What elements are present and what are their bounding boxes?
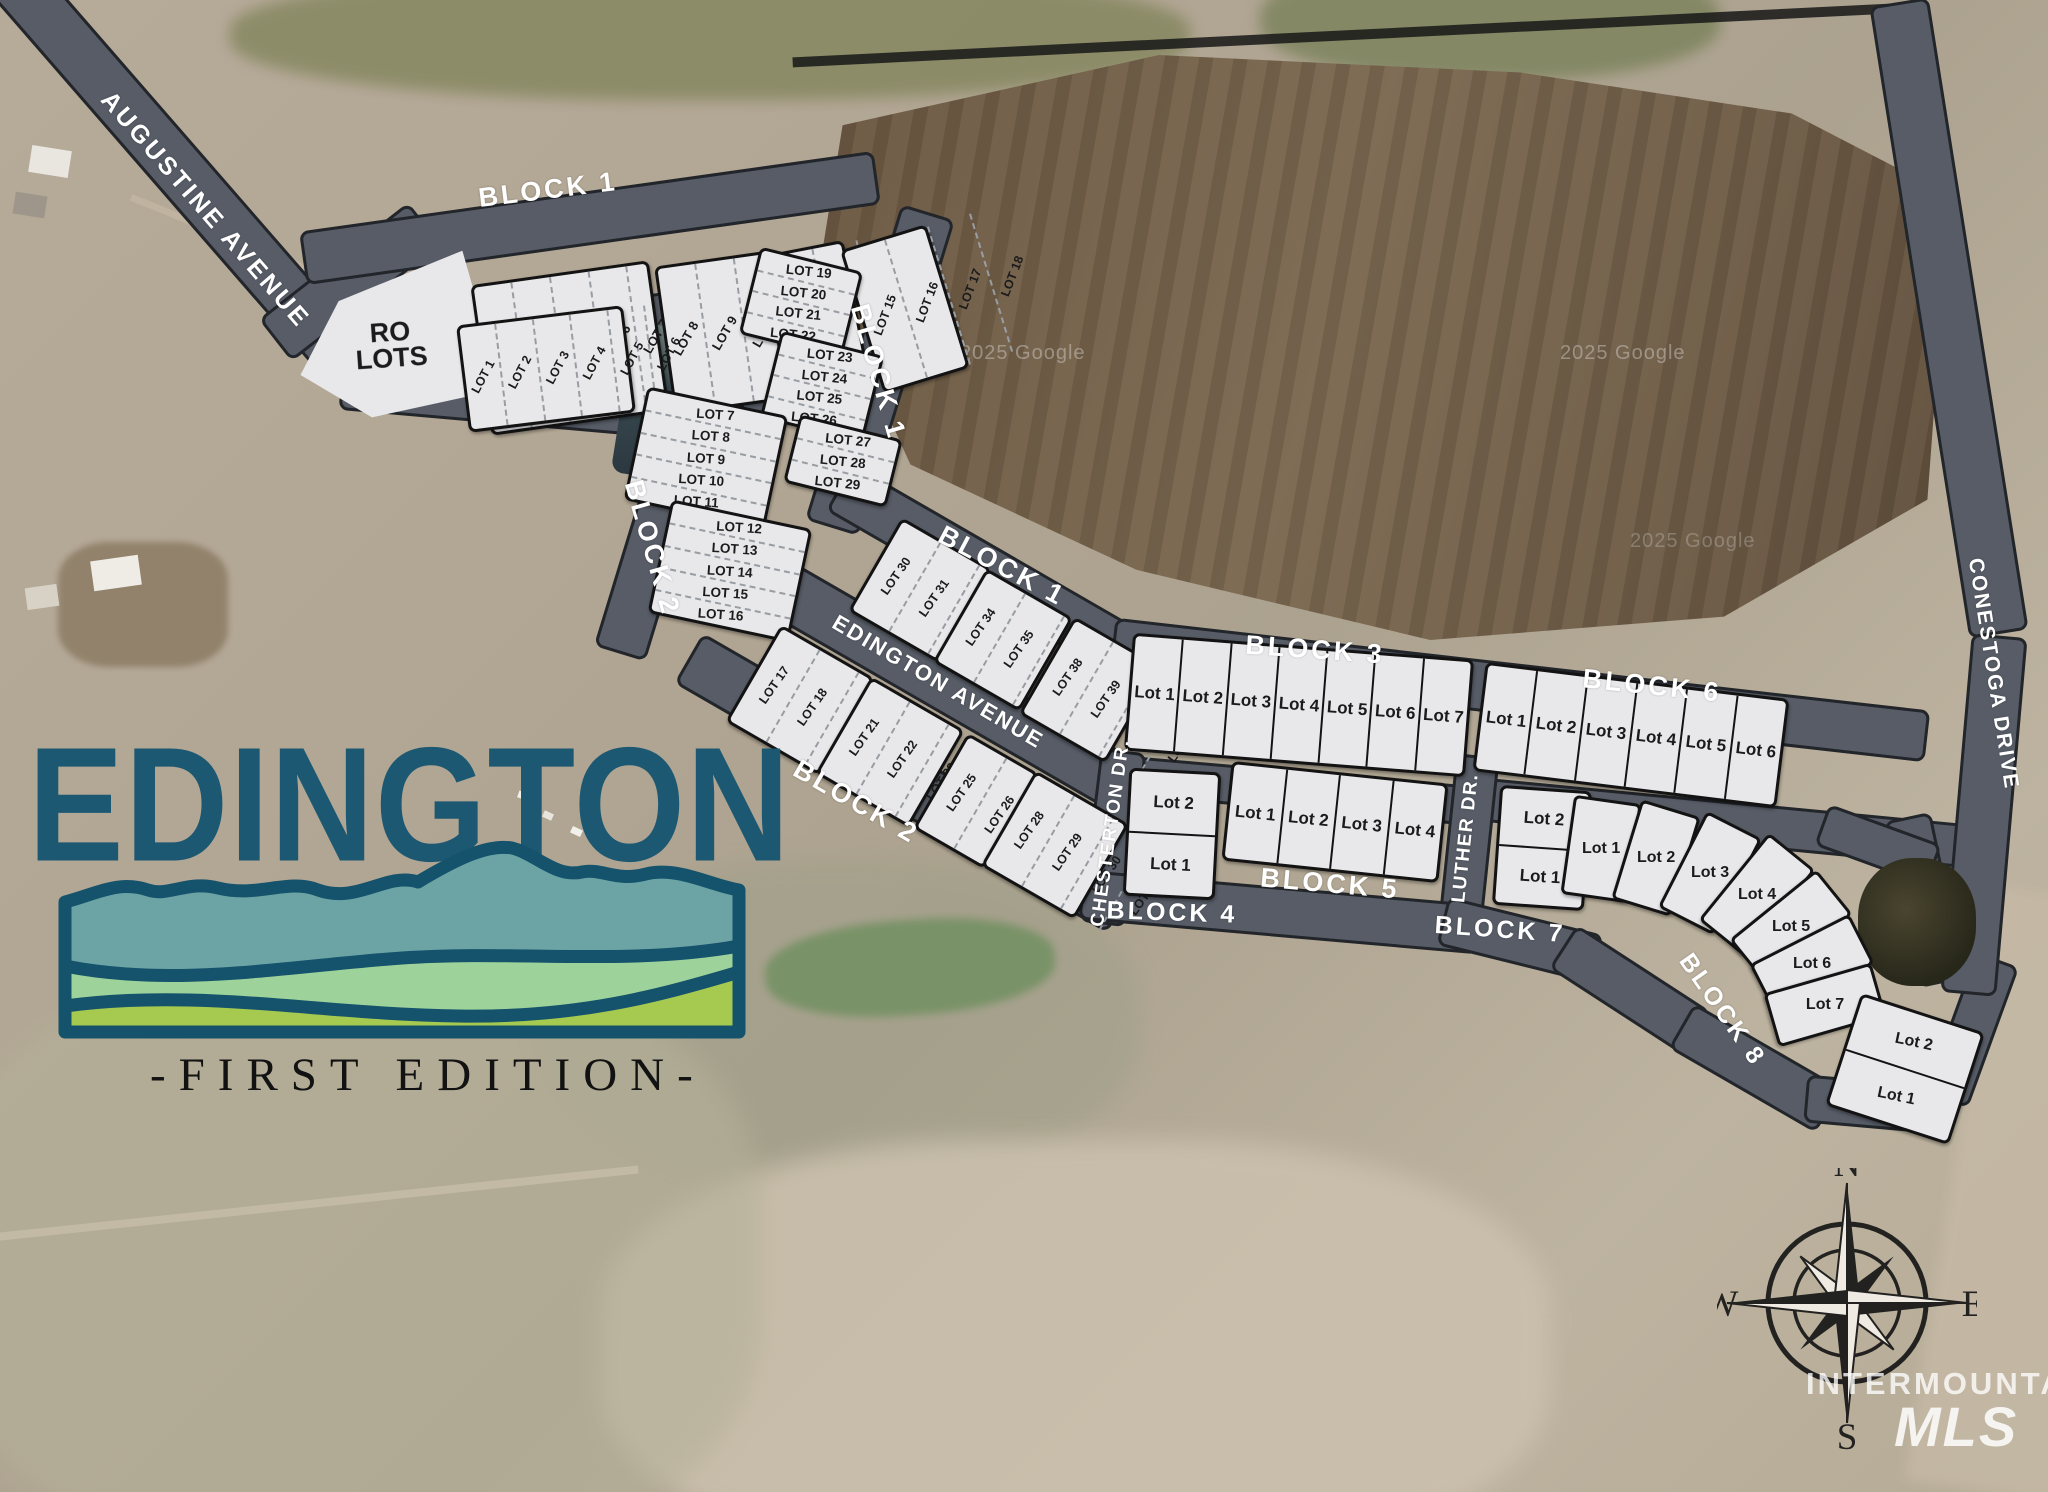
lot-cell: Lot 6	[1366, 655, 1423, 770]
lot-label: LOT 12	[716, 518, 763, 536]
lot-label: LOT 17	[956, 267, 984, 312]
farmstead	[58, 542, 228, 667]
imagery-watermark: 2025 Google	[1630, 530, 1756, 553]
lot-label: Lot 3	[1691, 864, 1729, 882]
mls-watermark-line2: MLS	[1894, 1394, 2048, 1459]
lot-label: Lot 7	[1422, 705, 1464, 728]
compass-west-label: W	[1717, 1284, 1739, 1325]
lot-label: LOT 38	[1050, 656, 1086, 699]
farm-building	[12, 192, 47, 219]
satellite-vegetation-strip	[230, 0, 1190, 100]
lot-cell: Lot 2	[1276, 770, 1339, 869]
compass-north-label: N	[1834, 1168, 1861, 1185]
lot-label: Lot 2	[1287, 807, 1329, 831]
mountain-logo-graphic	[56, 836, 748, 1040]
lot-label: LOT 7	[696, 405, 735, 423]
road-label-augustine: AUGUSTINE AVENUE	[94, 86, 315, 334]
lot-label: LOT 4	[580, 344, 609, 382]
lot-label: Lot 1	[1876, 1083, 1917, 1109]
lot-label: LOT 9	[709, 313, 740, 352]
lot-label: LOT 14	[707, 562, 754, 580]
lot-label: LOT 10	[678, 471, 725, 489]
lot-label: LOT 21	[846, 716, 882, 759]
lot-label: LOT 15	[702, 584, 749, 602]
lot-label: RO LOTS	[346, 317, 435, 374]
lot-label: Lot 1	[1519, 866, 1561, 889]
lot-cell: Lot 4	[1382, 781, 1445, 880]
lot-label: LOT 31	[916, 577, 952, 620]
farm-building	[25, 584, 60, 610]
lot-label: Lot 4	[1278, 693, 1320, 716]
road-label-block4: BLOCK 4	[1106, 896, 1238, 930]
lot-label: LOT 28	[1011, 809, 1047, 852]
lot-label: LOT 18	[795, 686, 831, 729]
imagery-watermark: 2025 Google	[1560, 342, 1686, 365]
lot-label: LOT 29	[1050, 831, 1086, 874]
lot-label: Lot 5	[1685, 732, 1728, 757]
lot-label: Lot 4	[1394, 818, 1436, 842]
lot-label: LOT 9	[686, 449, 725, 467]
lot-cell: Lot 2	[1129, 771, 1218, 835]
lot-label: LOT 29	[814, 472, 861, 492]
plat-map: 2025 Google 2025 Google 2025 Google RO L…	[0, 0, 2048, 1492]
lot-label: Lot 7	[1806, 996, 1844, 1014]
mls-watermark: INTERMOUNTAIN MLS	[1806, 1366, 2048, 1459]
lot-label: Lot 2	[1535, 713, 1578, 738]
lot-label: Lot 3	[1585, 720, 1628, 745]
lot-label: Lot 2	[1893, 1029, 1934, 1055]
lot-label: LOT 2	[506, 353, 535, 391]
lot-label: LOT 17	[756, 664, 792, 707]
lot-label: Lot 6	[1734, 738, 1777, 763]
lot-label: LOT 22	[885, 738, 921, 781]
lot-label: LOT 3	[543, 349, 572, 387]
lot-group-block5-lots: Lot 1Lot 2Lot 3Lot 4	[1221, 761, 1448, 883]
lot-cell: Lot 3	[1329, 775, 1392, 874]
lot-group-small-block: LOT 1LOT 2LOT 3LOT 4LOT 5LOT 6	[456, 305, 636, 433]
farm-building	[90, 555, 142, 591]
lot-label: LOT 30	[878, 555, 914, 598]
lot-label: Lot 2	[1637, 849, 1675, 867]
satellite-light-field	[600, 1140, 1550, 1492]
lot-label: Lot 6	[1374, 701, 1416, 724]
lot-cell: Lot 1	[1126, 831, 1215, 897]
lot-cell: Lot 7	[1414, 659, 1471, 774]
lot-label: Lot 3	[1340, 813, 1382, 837]
lot-label: LOT 39	[1088, 678, 1124, 721]
lot-label: Lot 3	[1230, 690, 1272, 713]
lot-label: LOT 25	[944, 771, 980, 814]
farm-building	[28, 145, 72, 178]
lot-label: Lot 4	[1738, 886, 1776, 904]
road-conestoga-upper	[1869, 0, 2028, 639]
lot-label: Lot 1	[1485, 707, 1528, 732]
satellite-vegetation-strip	[1260, 0, 1720, 80]
satellite-green-band	[762, 910, 1058, 1025]
lot-label: Lot 4	[1635, 726, 1678, 751]
compass-east-label: E	[1962, 1284, 1977, 1325]
lot-label: LOT 1	[469, 358, 498, 396]
lot-label: Lot 1	[1234, 802, 1276, 826]
lot-label: Lot 6	[1793, 955, 1831, 973]
lot-label: Lot 2	[1523, 808, 1565, 831]
lot-label: LOT 16	[913, 280, 941, 325]
subdivision-edition-label: -FIRST EDITION-	[150, 1048, 706, 1102]
lot-label: Lot 1	[1582, 840, 1620, 858]
lot-label: LOT 35	[1001, 628, 1037, 671]
lot-label: Lot 2	[1182, 686, 1224, 709]
lot-label: Lot 1	[1150, 854, 1192, 876]
lot-label: Lot 1	[1134, 682, 1176, 705]
lot-group-block4-lots: Lot 2Lot 1	[1123, 768, 1222, 901]
lot-label: Lot 5	[1326, 697, 1368, 720]
lot-label: Lot 5	[1772, 918, 1810, 936]
lot-label: LOT 6	[654, 335, 683, 373]
dirt-track	[0, 1166, 639, 1243]
lot-label: Lot 2	[1153, 792, 1195, 814]
lot-label: LOT 34	[963, 606, 999, 649]
lot-label: LOT 8	[691, 427, 730, 445]
lot-cell: Lot 2	[1173, 640, 1230, 755]
canal-line	[792, 3, 1911, 68]
lot-label: LOT 16	[697, 606, 744, 624]
lot-label: LOT 18	[998, 254, 1026, 299]
lot-label: LOT 5	[617, 340, 646, 378]
